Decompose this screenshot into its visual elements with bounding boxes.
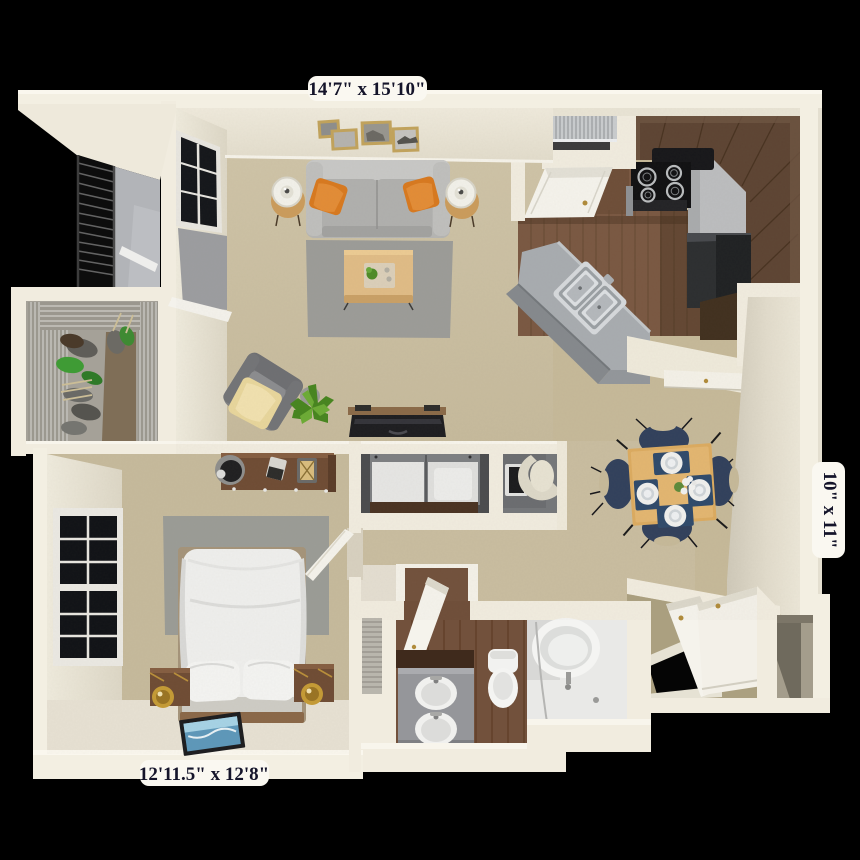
svg-text:14'7" x 15'10": 14'7" x 15'10" — [308, 79, 425, 100]
svg-text:10" x 11": 10" x 11" — [819, 471, 840, 548]
svg-text:12'11.5" x 12'8": 12'11.5" x 12'8" — [139, 764, 269, 785]
